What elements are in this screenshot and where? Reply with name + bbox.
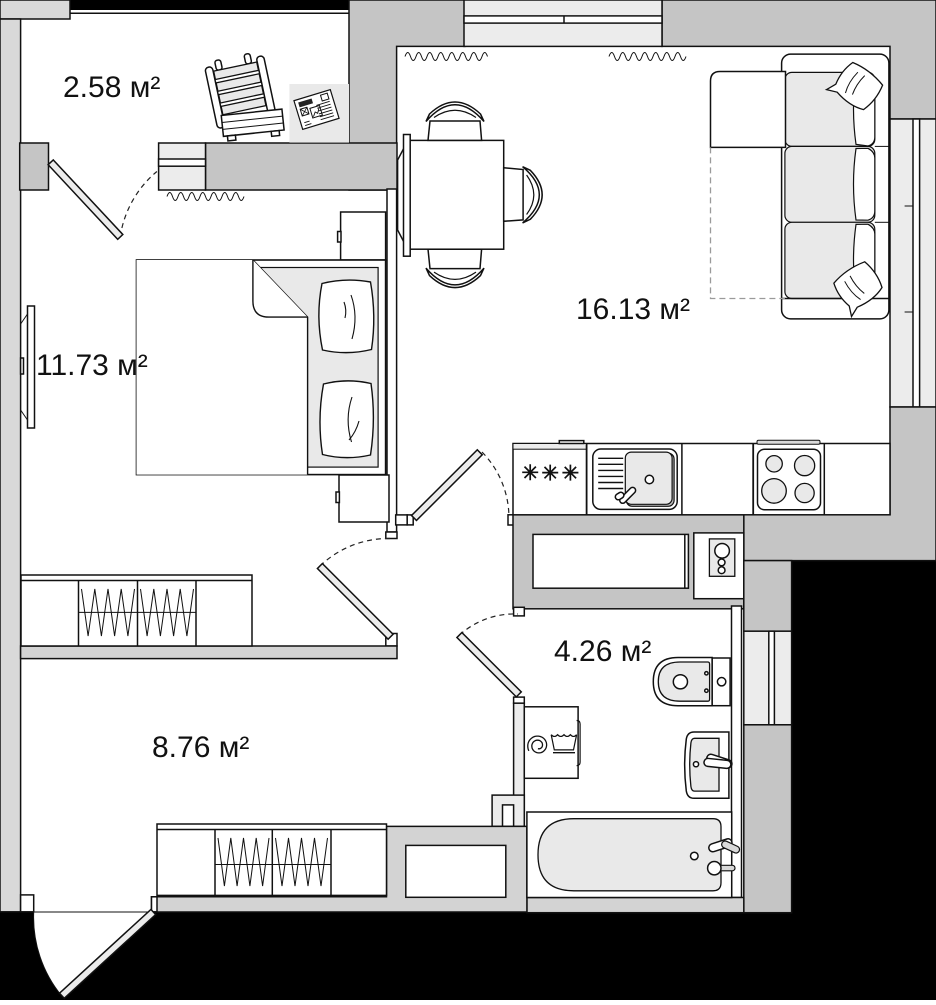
svg-text:16.13 м²: 16.13 м² [576,293,690,326]
svg-text:11.73 м²: 11.73 м² [36,349,148,382]
svg-text:4.26 м²: 4.26 м² [554,635,651,668]
svg-text:2.58 м²: 2.58 м² [63,71,160,104]
svg-text:8.76 м²: 8.76 м² [152,731,249,764]
